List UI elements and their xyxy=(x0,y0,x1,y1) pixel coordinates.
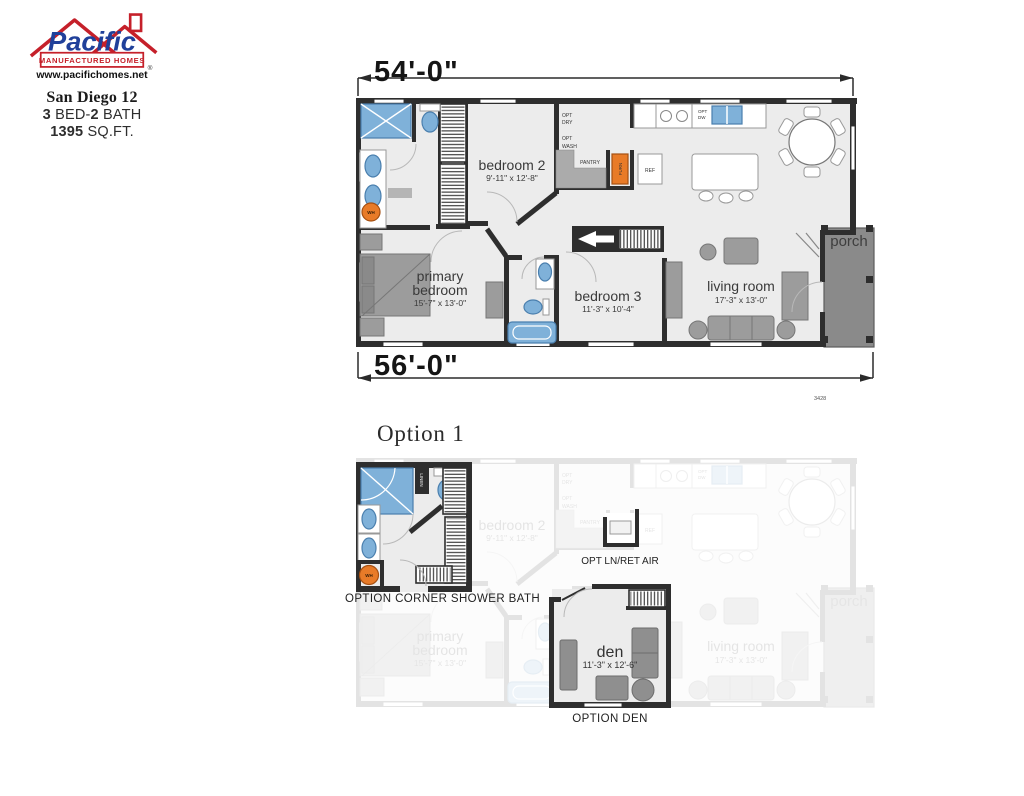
living-name: living room xyxy=(707,278,775,294)
sink-icon xyxy=(362,509,376,529)
dim-bottom-label: 56'-0" xyxy=(374,350,459,382)
linen-label: LINEN xyxy=(419,473,424,486)
range-icon xyxy=(656,104,692,128)
main-floorplan: porch xyxy=(356,98,874,347)
nightstand-icon xyxy=(360,234,382,250)
tv-stand-icon xyxy=(782,272,808,320)
option-section-title: Option 1 xyxy=(377,421,465,446)
opt-wash-label2: WASH xyxy=(562,144,577,150)
bedroom2-name: bedroom 2 xyxy=(479,157,546,173)
opt-wash-label1: OPT xyxy=(562,136,572,142)
sofa-icon xyxy=(708,316,774,340)
den-name: den xyxy=(597,644,624,661)
bedroom2-dims: 9'-11" x 12'-8" xyxy=(486,173,538,183)
primary-dims: 15'-7" x 13'-0" xyxy=(414,298,466,308)
bathtub-icon xyxy=(508,322,556,343)
opt-dry-label1: OPT xyxy=(562,113,572,119)
hall-closet xyxy=(572,226,664,252)
wh-label: WH xyxy=(367,210,375,215)
furn-label: FURN xyxy=(618,163,623,176)
stool-icon xyxy=(699,191,713,201)
toilet-icon xyxy=(422,112,438,132)
stool-icon xyxy=(719,193,733,203)
kitchen-island xyxy=(692,154,758,190)
sink-icon xyxy=(539,263,552,281)
primary-name2: bedroom xyxy=(412,282,467,298)
bedroom2-closet xyxy=(440,104,466,224)
living-dims: 17'-3" x 13'-0" xyxy=(715,295,767,305)
side-table-icon xyxy=(689,321,707,339)
den-dims: 11'-3" x 12'-6" xyxy=(583,660,638,670)
toilet-icon xyxy=(524,300,542,314)
cabinet-icon xyxy=(666,262,682,318)
dimension-bottom: 56'-0" xyxy=(358,350,873,382)
side-table-icon xyxy=(777,321,795,339)
dresser-icon xyxy=(486,282,503,318)
wh-label: WH xyxy=(365,573,373,578)
chair-icon xyxy=(596,676,628,700)
bedroom3-name: bedroom 3 xyxy=(575,288,642,304)
floorplan-canvas: porch xyxy=(0,0,1024,796)
round-table-icon xyxy=(632,679,654,701)
opt-dw-label2: DW xyxy=(698,115,706,120)
ln-ret-air-label: OPT LN/RET AIR xyxy=(581,556,658,567)
dimension-top: 54'-0" xyxy=(358,56,853,96)
bath-mat xyxy=(388,188,412,198)
pantry-label: PANTRY xyxy=(580,160,600,166)
side-table-icon xyxy=(700,244,716,260)
dim-top-label: 54'-0" xyxy=(374,56,459,88)
option-bath-label: OPTION CORNER SHOWER BATH xyxy=(345,593,540,605)
loveseat-icon xyxy=(560,640,577,690)
opt-dry-label2: DRY xyxy=(562,120,573,126)
sink-icon xyxy=(365,155,381,177)
porch: porch xyxy=(821,225,874,347)
opt-dw-label1: OPT xyxy=(698,109,708,114)
dining-table-icon xyxy=(789,119,835,165)
sink-icon xyxy=(362,538,376,558)
bedroom3-dims: 11'-3" x 10'-4" xyxy=(582,304,634,314)
nightstand-icon xyxy=(360,318,384,336)
ref-label: REF xyxy=(645,168,655,174)
armchair-icon xyxy=(724,238,758,264)
option-den: den 11'-3" x 12'-6" OPTION DEN xyxy=(549,584,671,725)
floorplan-sheet: Pacific MANUFACTURED HOMES ® www.pacific… xyxy=(0,0,1024,796)
toilet-tank-icon xyxy=(420,104,440,111)
plan-number: 3428 xyxy=(814,396,826,402)
option-den-label: OPTION DEN xyxy=(572,713,648,725)
porch-label: porch xyxy=(830,233,868,250)
return-air-unit xyxy=(610,521,631,534)
stool-icon xyxy=(739,191,753,201)
